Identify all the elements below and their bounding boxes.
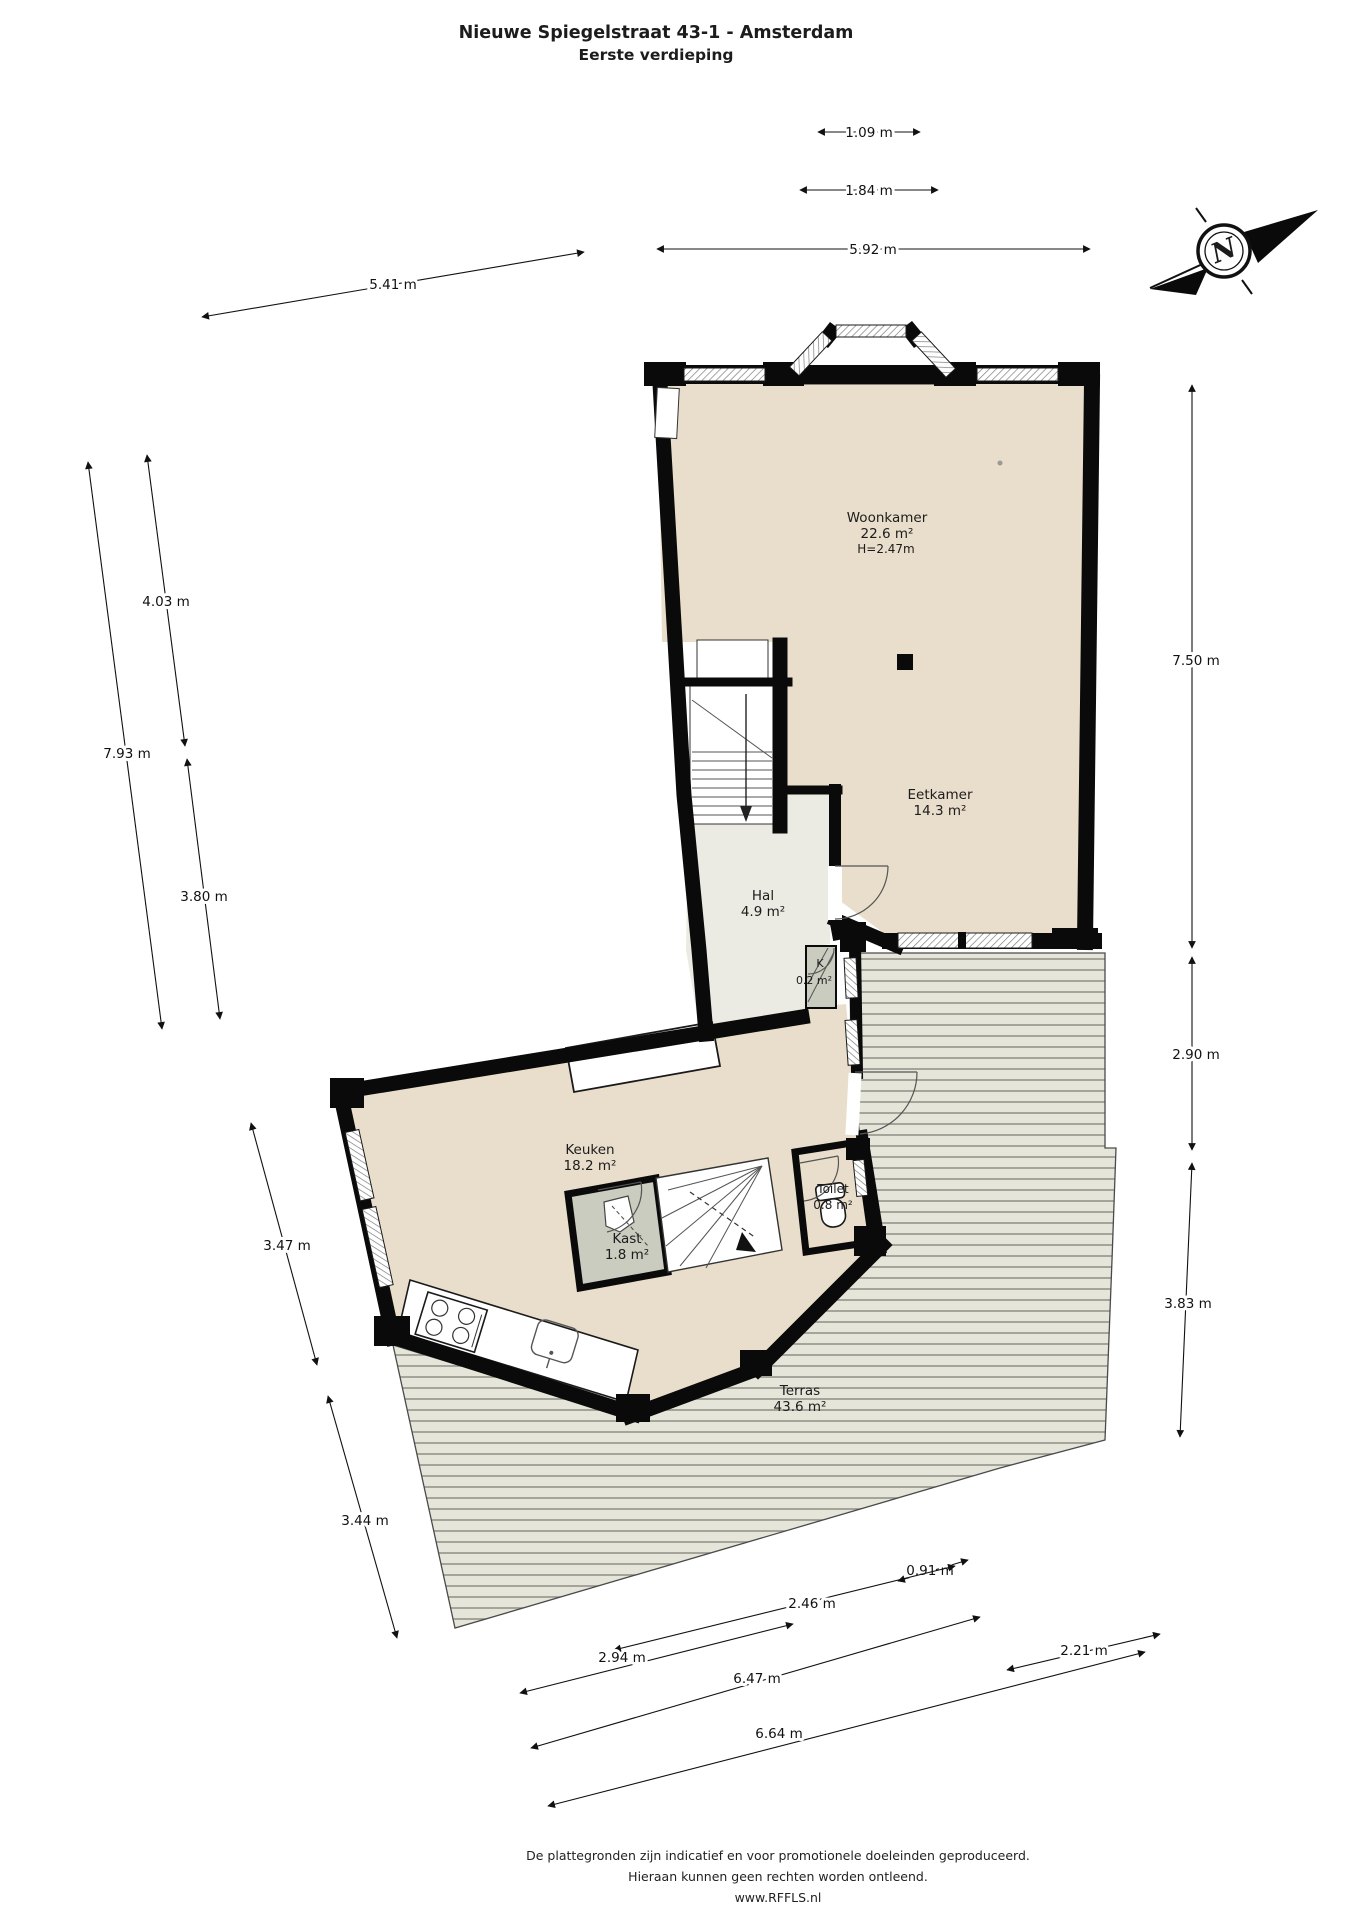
svg-text:4.03 m: 4.03 m	[142, 594, 190, 610]
svg-text:7.93 m: 7.93 m	[103, 746, 151, 762]
svg-text:Toilet: Toilet	[816, 1182, 849, 1196]
room-label-eetkamer: Eetkamer 14.3 m²	[908, 787, 973, 819]
page-title: Nieuwe Spiegelstraat 43-1 - Amsterdam	[459, 23, 854, 43]
svg-text:Eetkamer: Eetkamer	[908, 787, 973, 803]
footer-disclaimer-1: De plattegronden zijn indicatief en voor…	[526, 1848, 1030, 1863]
svg-text:Woonkamer: Woonkamer	[847, 510, 928, 526]
room-label-terras: Terras 43.6 m²	[774, 1383, 827, 1415]
svg-text:K: K	[816, 957, 824, 970]
svg-text:2.90 m: 2.90 m	[1172, 1047, 1220, 1063]
svg-text:7.50 m: 7.50 m	[1172, 653, 1220, 669]
svg-text:Keuken: Keuken	[565, 1142, 614, 1158]
bay-front-window	[836, 325, 906, 337]
svg-text:1.09 m: 1.09 m	[845, 125, 893, 141]
page-subtitle: Eerste verdieping	[578, 46, 733, 64]
svg-text:H=2.47m: H=2.47m	[857, 542, 915, 556]
stair-void	[697, 640, 768, 682]
wall-niche	[655, 387, 680, 438]
window-arm-2	[845, 1020, 860, 1066]
svg-text:3.44 m: 3.44 m	[341, 1513, 389, 1529]
dimension-3.47m: 3.47 m	[251, 1123, 317, 1365]
svg-text:6.64 m: 6.64 m	[755, 1726, 803, 1742]
svg-text:2.21 m: 2.21 m	[1060, 1643, 1108, 1659]
dimension-6.64m: 6.64 m	[548, 1652, 1145, 1806]
window-top-left	[684, 368, 765, 381]
svg-text:22.6 m²: 22.6 m²	[861, 526, 914, 542]
chimney-block	[897, 654, 913, 670]
svg-text:Kast: Kast	[612, 1231, 641, 1247]
svg-text:5.92 m: 5.92 m	[849, 242, 897, 258]
svg-text:3.83 m: 3.83 m	[1164, 1296, 1212, 1312]
svg-text:6.47 m: 6.47 m	[733, 1671, 781, 1687]
svg-text:3.47 m: 3.47 m	[263, 1238, 311, 1254]
window-top-right	[977, 368, 1058, 381]
svg-text:43.6 m²: 43.6 m²	[774, 1399, 827, 1415]
svg-text:0.2 m²: 0.2 m²	[796, 974, 832, 987]
staircase-down-icon	[690, 686, 774, 824]
svg-text:14.3 m²: 14.3 m²	[914, 803, 967, 819]
svg-text:1.84 m: 1.84 m	[845, 183, 893, 199]
svg-text:1.8 m²: 1.8 m²	[605, 1247, 649, 1263]
svg-text:18.2 m²: 18.2 m²	[564, 1158, 617, 1174]
svg-text:Terras: Terras	[779, 1383, 820, 1399]
svg-text:0.8 m²: 0.8 m²	[813, 1198, 853, 1212]
svg-text:2.94 m: 2.94 m	[598, 1650, 646, 1666]
svg-text:5.41 m: 5.41 m	[369, 277, 417, 293]
svg-text:4.9 m²: 4.9 m²	[741, 904, 785, 920]
room-label-keuken: Keuken 18.2 m²	[564, 1142, 617, 1174]
dimension-1.84m: 1.84 m	[800, 183, 938, 199]
dimension-2.90m: 2.90 m	[1172, 957, 1220, 1150]
dimension-7.50m: 7.50 m	[1172, 385, 1220, 948]
dimension-3.83m: 3.83 m	[1164, 1163, 1212, 1437]
compass-north-icon: N	[1150, 208, 1318, 295]
floorplan-page: Woonkamer 22.6 m² H=2.47m Eetkamer 14.3 …	[0, 0, 1358, 1920]
svg-text:3.80 m: 3.80 m	[180, 889, 228, 905]
dimension-7.93m: 7.93 m	[88, 462, 162, 1029]
window-arm-1	[844, 958, 858, 999]
dimension-4.03m: 4.03 m	[142, 455, 190, 746]
dimension-1.09m: 1.09 m	[818, 125, 920, 141]
ceiling-spot	[998, 461, 1003, 466]
dimension-2.21m: 2.21 m	[1007, 1634, 1160, 1670]
dimension-2.46m: 2.46 m	[614, 1566, 955, 1650]
svg-text:2.46 m: 2.46 m	[788, 1596, 836, 1612]
svg-text:Hal: Hal	[752, 888, 774, 904]
dimension-5.92m: 5.92 m	[657, 242, 1090, 258]
dimension-3.44m: 3.44 m	[328, 1396, 397, 1638]
footer-website: www.RFFLS.nl	[735, 1890, 822, 1905]
footer-disclaimer-2: Hieraan kunnen geen rechten worden ontle…	[628, 1869, 928, 1884]
dimension-3.80m: 3.80 m	[180, 759, 228, 1019]
dimension-5.41m: 5.41 m	[202, 252, 584, 317]
floorplan-drawing: Woonkamer 22.6 m² H=2.47m Eetkamer 14.3 …	[0, 0, 1358, 1920]
